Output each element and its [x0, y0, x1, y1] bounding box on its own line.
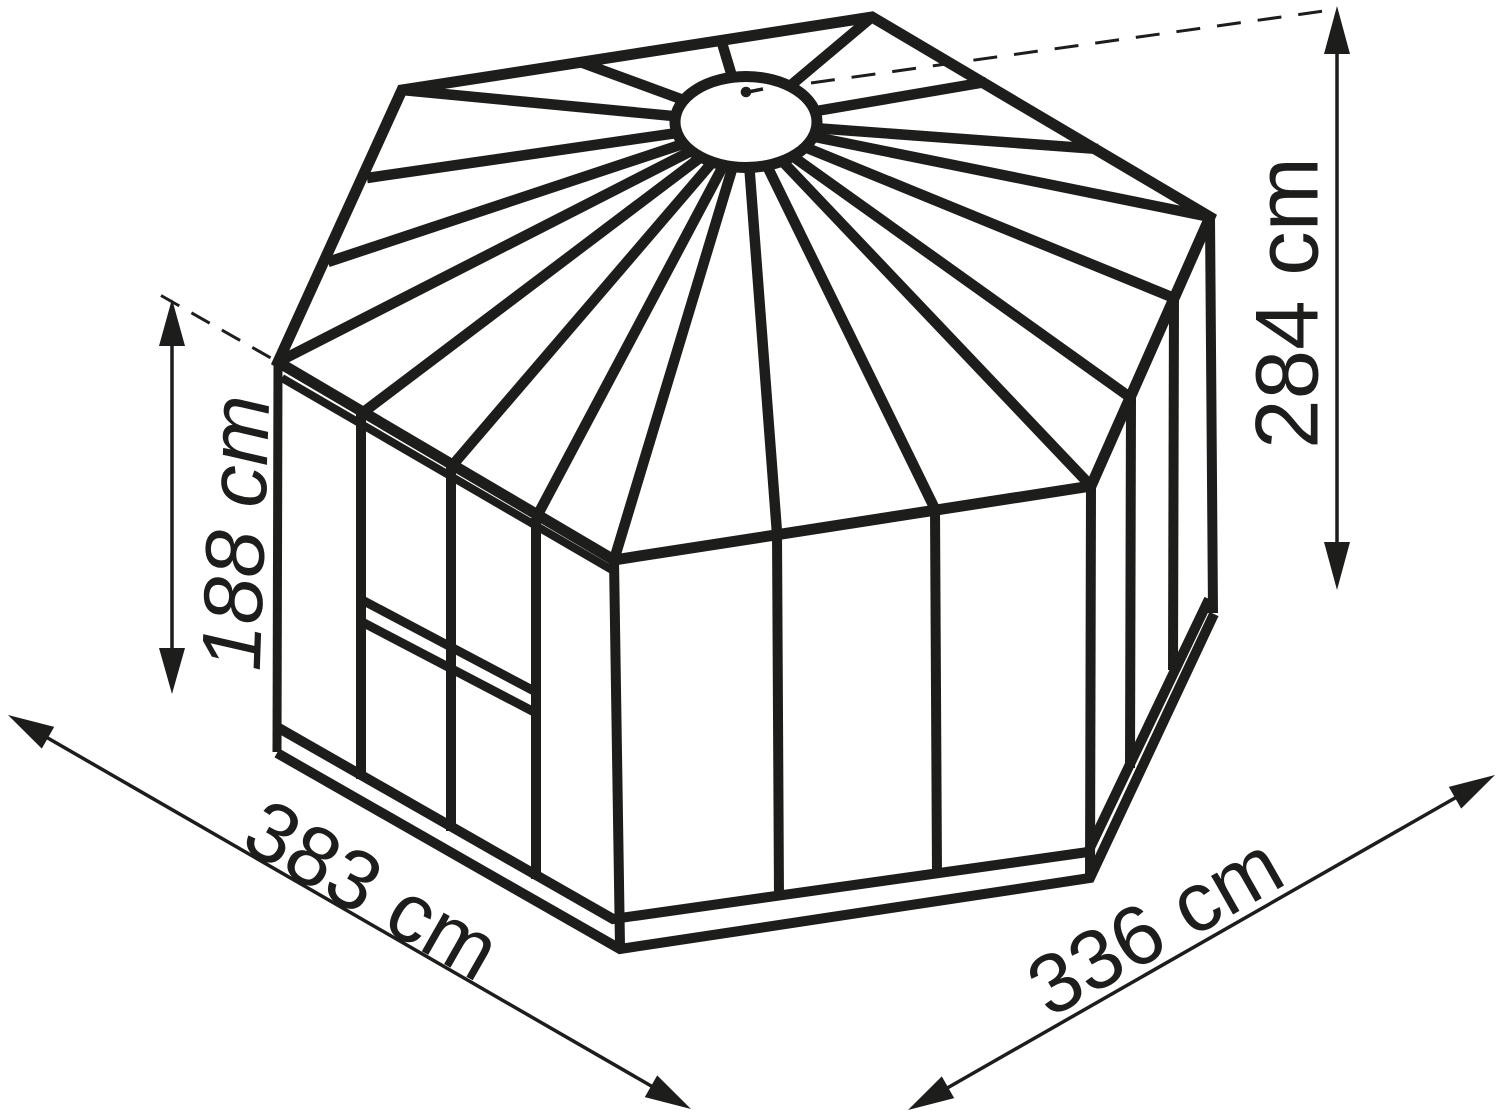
svg-text:284 cm: 284 cm [1236, 157, 1336, 449]
svg-text:188 cm: 188 cm [184, 394, 288, 673]
